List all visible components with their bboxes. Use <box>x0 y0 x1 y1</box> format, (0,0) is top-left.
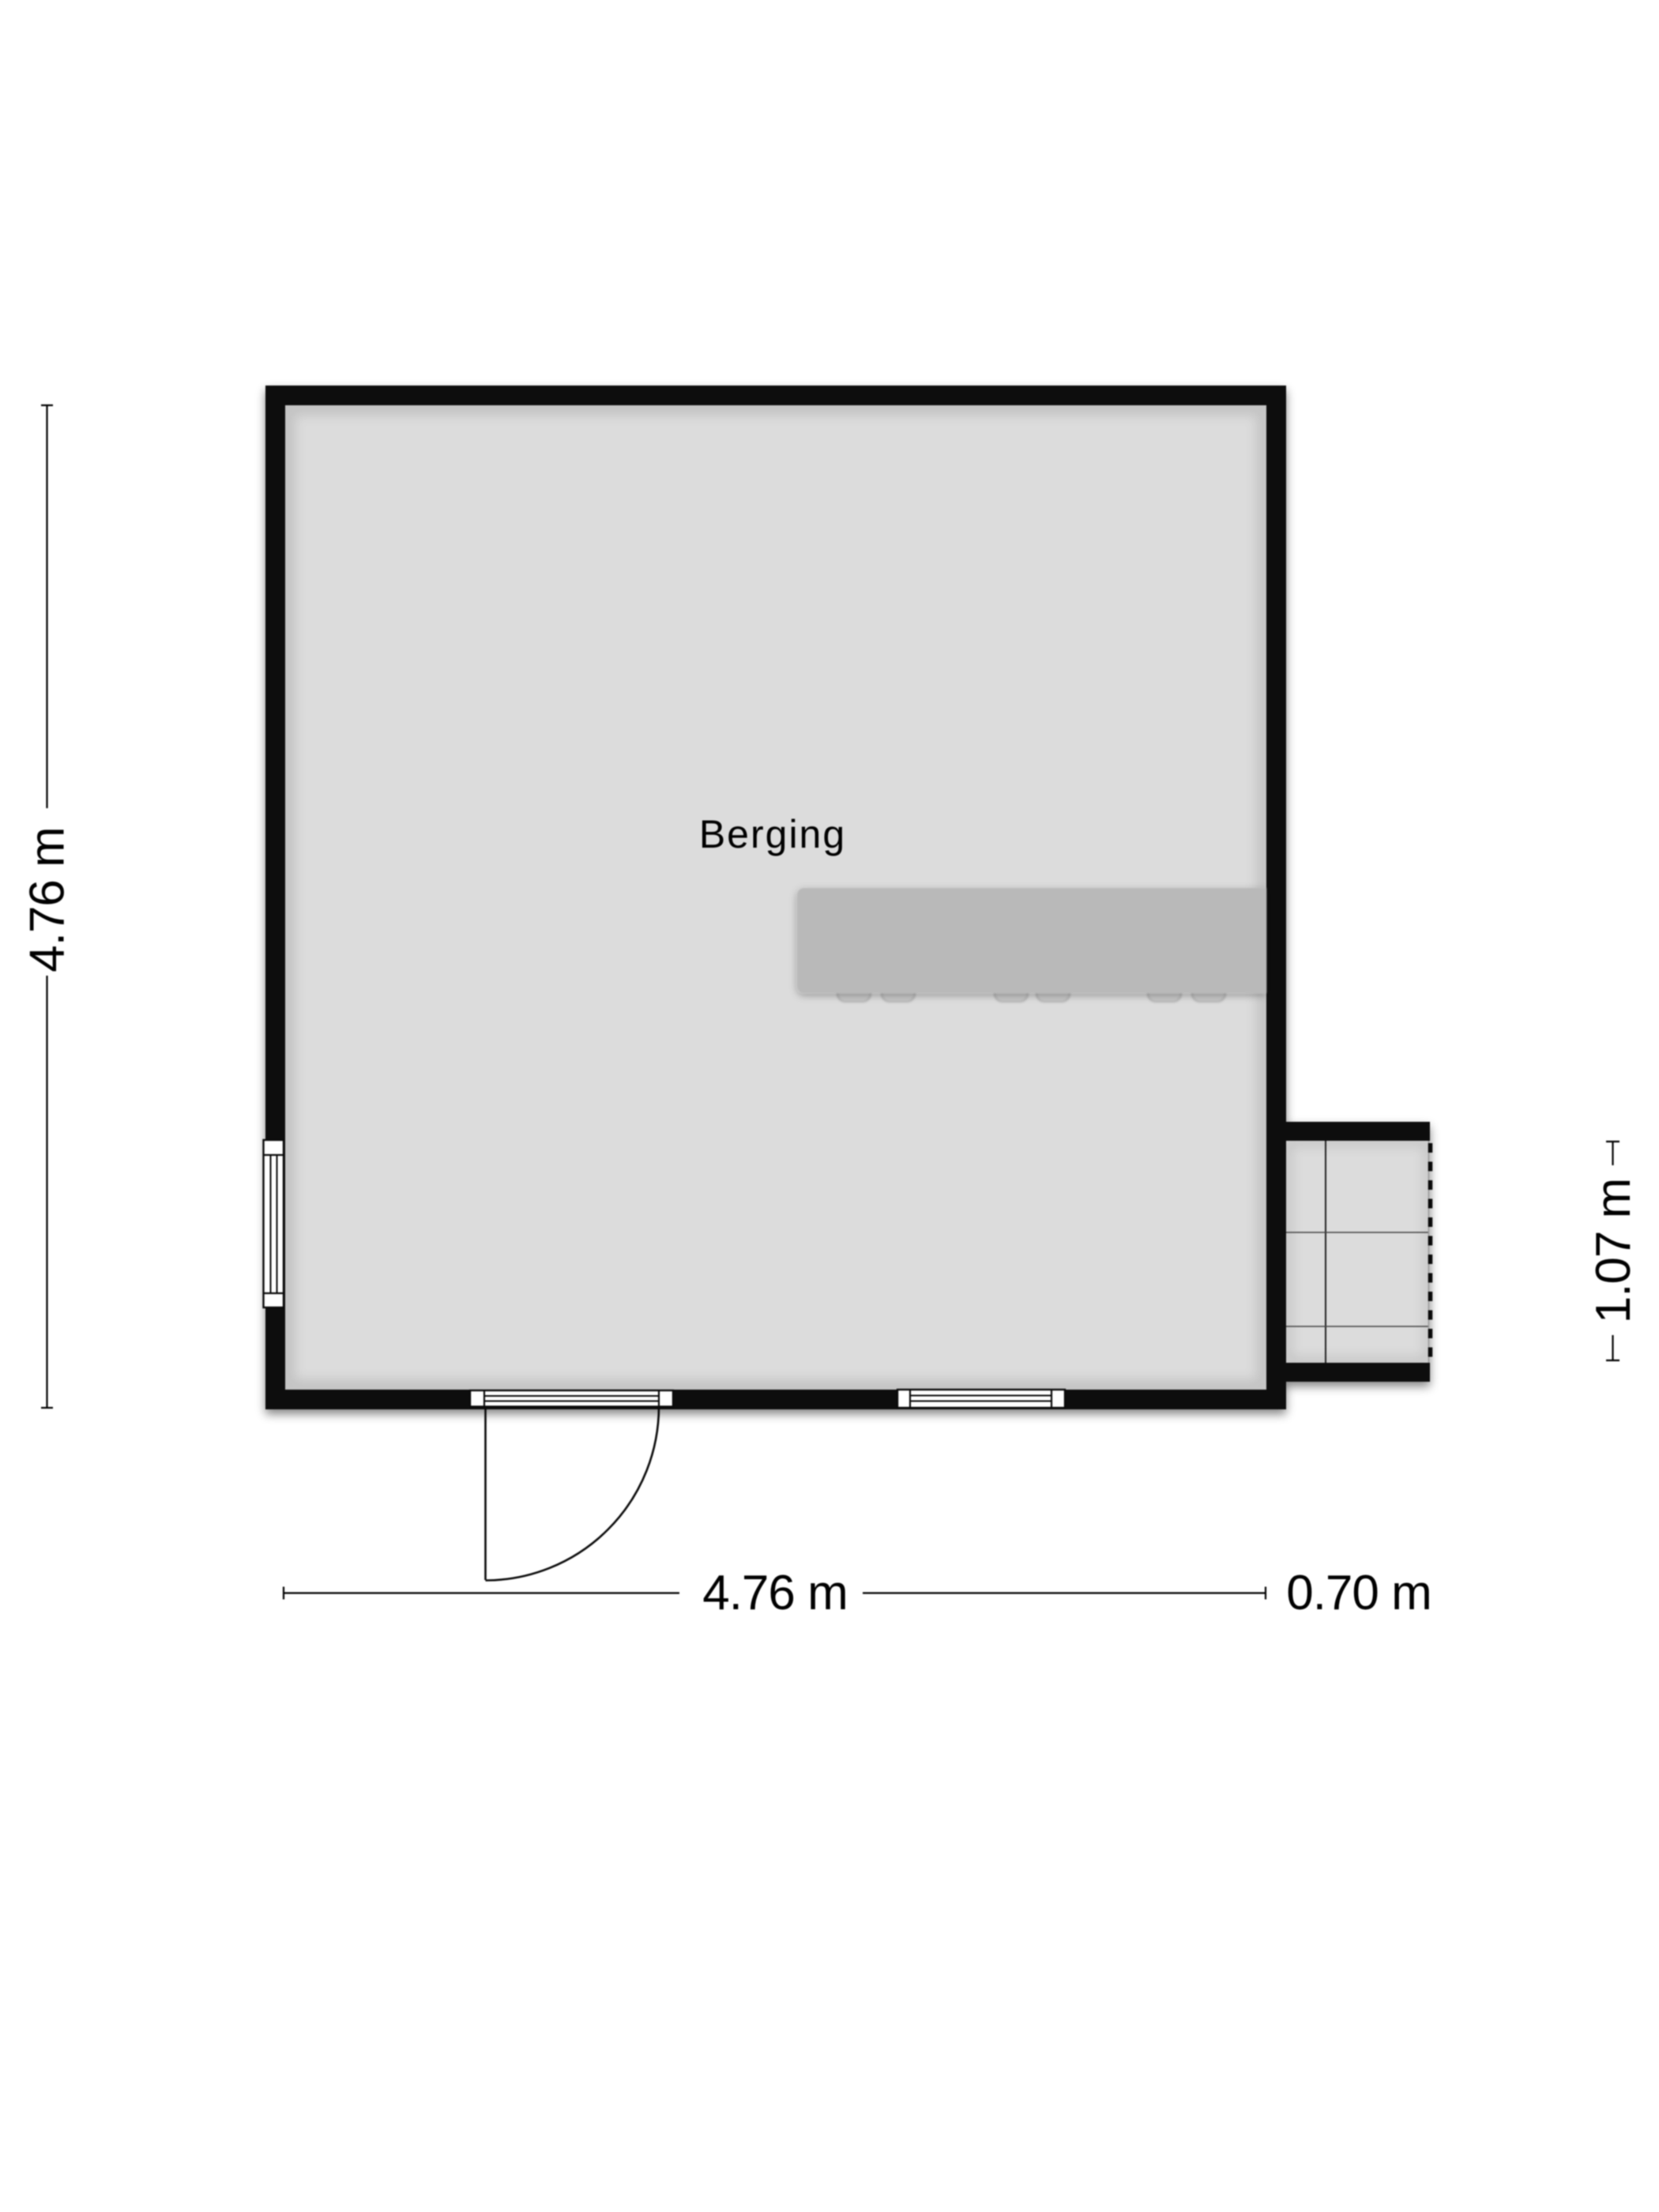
svg-text:4.76 m: 4.76 m <box>702 1566 848 1620</box>
svg-text:0.70 m: 0.70 m <box>1286 1566 1431 1620</box>
svg-text:Berging: Berging <box>699 812 846 856</box>
svg-text:1.07 m: 1.07 m <box>1586 1179 1641 1324</box>
svg-text:4.76 m: 4.76 m <box>21 827 75 972</box>
